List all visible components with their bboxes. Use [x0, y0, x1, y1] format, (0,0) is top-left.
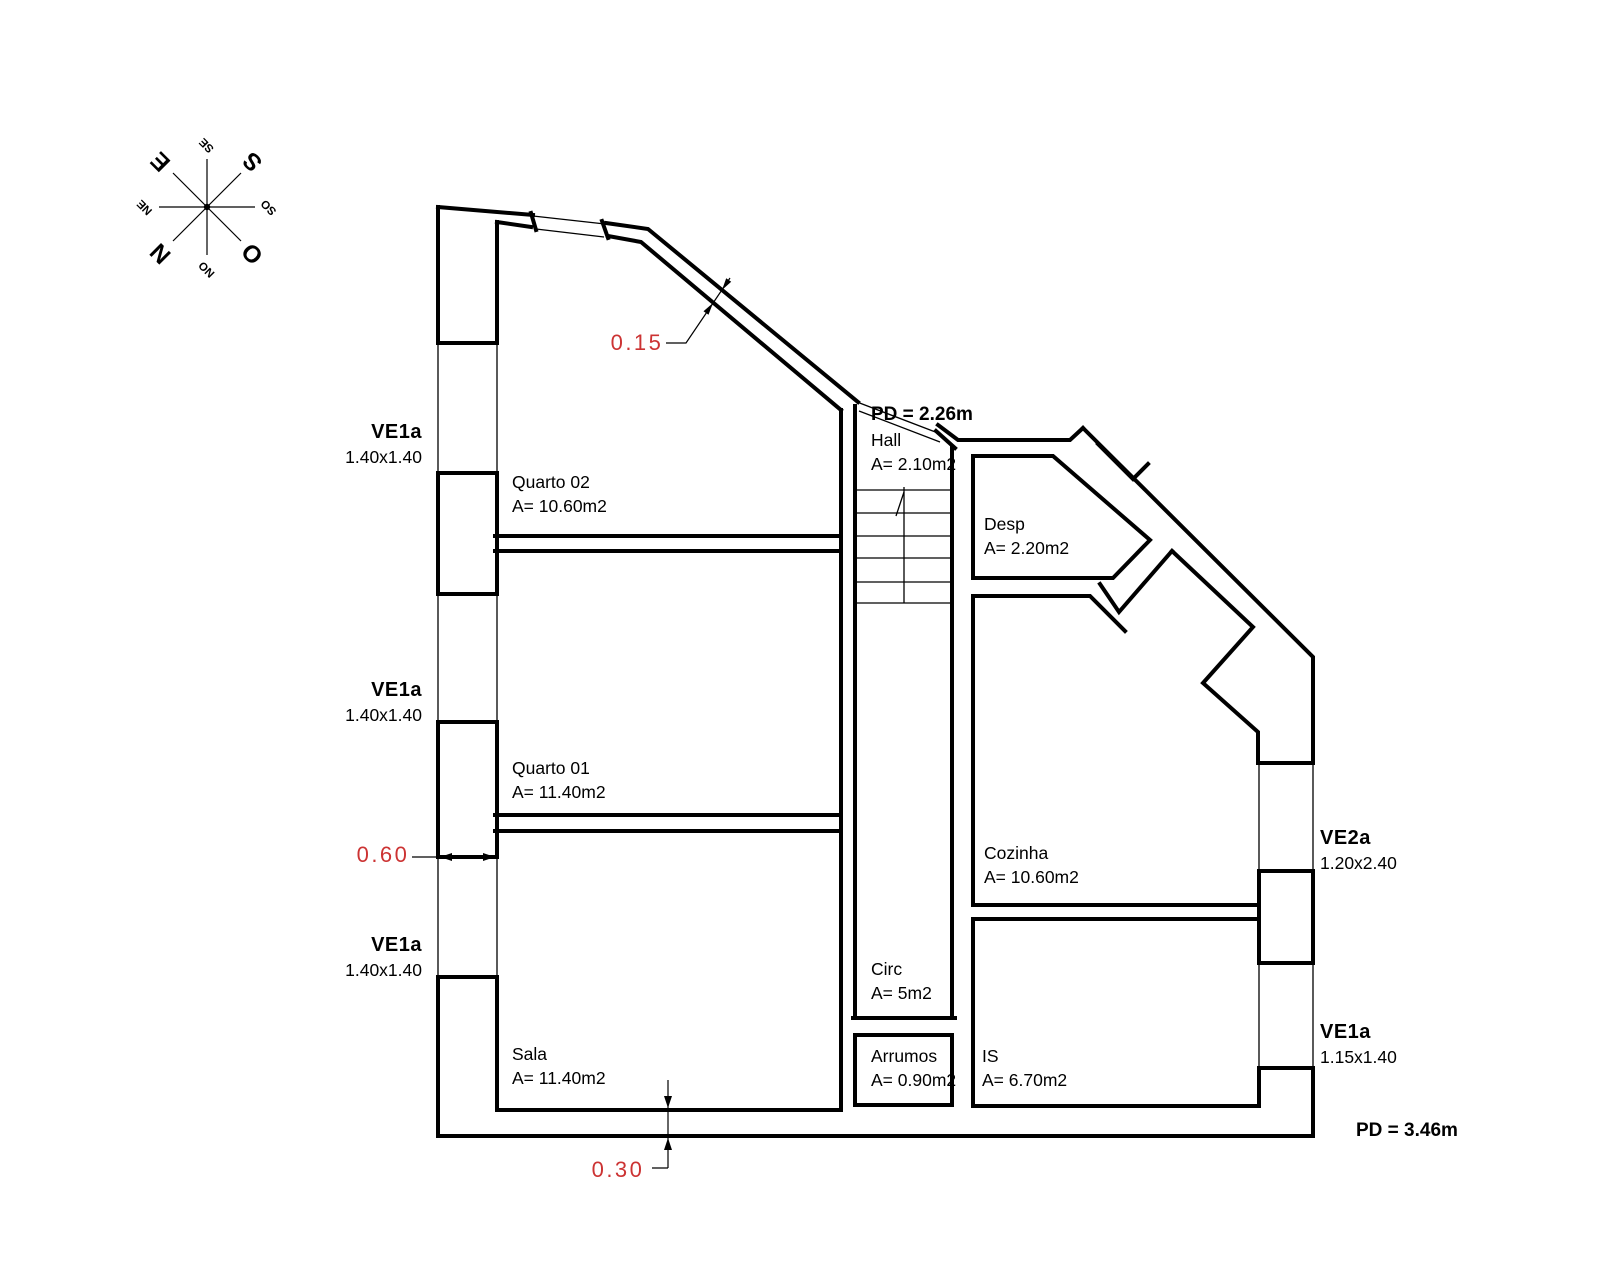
window-tag-ve1a-2: VE1a1.40x1.40 — [345, 933, 422, 982]
window-tag-ve2a-3: VE2a1.20x2.40 — [1320, 826, 1397, 875]
window-code: VE1a — [345, 678, 422, 703]
room-label-arrumos: ArrumosA= 0.90m2 — [871, 1044, 956, 1092]
window-size: 1.40x1.40 — [345, 958, 422, 982]
room-name: Hall — [871, 428, 956, 452]
window-tag-ve1a-1: VE1a1.40x1.40 — [345, 678, 422, 727]
ceiling-height-note-1: PD = 3.46m — [1356, 1120, 1458, 1142]
room-area: A= 2.10m2 — [871, 452, 956, 476]
window-code: VE1a — [345, 420, 422, 445]
window-code: VE2a — [1320, 826, 1397, 851]
dimension-text-0-30: 0.30 — [592, 1157, 645, 1183]
room-name: IS — [982, 1044, 1067, 1068]
floor-plan-linework — [0, 0, 1600, 1280]
room-name: Quarto 02 — [512, 470, 607, 494]
room-label-hall: HallA= 2.10m2 — [871, 428, 956, 476]
window-ve2a-right — [1259, 763, 1313, 871]
window-ve1a-right — [1259, 963, 1313, 1068]
windows-and-stairs-thin — [438, 216, 1313, 1068]
room-name: Cozinha — [984, 841, 1079, 865]
dimension-text-0-60: 0.60 — [357, 842, 410, 868]
window-code: VE1a — [345, 933, 422, 958]
room-label-desp: DespA= 2.20m2 — [984, 512, 1069, 560]
room-label-circ: CircA= 5m2 — [871, 957, 932, 1005]
room-label-is: ISA= 6.70m2 — [982, 1044, 1067, 1092]
window-ve1a-left-1 — [438, 343, 497, 473]
dim-0-30-leader — [652, 1080, 668, 1168]
room-label-quarto-01: Quarto 01A= 11.40m2 — [512, 756, 606, 804]
window-size: 1.20x2.40 — [1320, 851, 1397, 875]
room-area: A= 6.70m2 — [982, 1068, 1067, 1092]
room-name: Arrumos — [871, 1044, 956, 1068]
window-tag-ve1a-0: VE1a1.40x1.40 — [345, 420, 422, 469]
window-ve1a-left-3 — [438, 857, 497, 977]
window-size: 1.40x1.40 — [345, 445, 422, 469]
ceiling-height-note-0: PD = 2.26m — [871, 404, 973, 426]
room-area: A= 5m2 — [871, 981, 932, 1005]
room-area: A= 2.20m2 — [984, 536, 1069, 560]
room-area: A= 10.60m2 — [984, 865, 1079, 889]
window-code: VE1a — [1320, 1020, 1397, 1045]
window-top — [533, 216, 605, 237]
room-label-sala: SalaA= 11.40m2 — [512, 1042, 606, 1090]
room-area: A= 10.60m2 — [512, 494, 607, 518]
room-area: A= 11.40m2 — [512, 780, 606, 804]
window-size: 1.40x1.40 — [345, 703, 422, 727]
room-label-cozinha: CozinhaA= 10.60m2 — [984, 841, 1079, 889]
compass-rose — [159, 159, 255, 255]
room-label-quarto-02: Quarto 02A= 10.60m2 — [512, 470, 607, 518]
room-name: Circ — [871, 957, 932, 981]
room-name: Desp — [984, 512, 1069, 536]
window-size: 1.15x1.40 — [1320, 1045, 1397, 1069]
window-tag-ve1a-4: VE1a1.15x1.40 — [1320, 1020, 1397, 1069]
dimension-text-0-15: 0.15 — [611, 330, 664, 356]
room-name: Quarto 01 — [512, 756, 606, 780]
floor-plan-canvas: Quarto 02A= 10.60m2Quarto 01A= 11.40m2Sa… — [0, 0, 1600, 1280]
room-area: A= 0.90m2 — [871, 1068, 956, 1092]
room-area: A= 11.40m2 — [512, 1066, 606, 1090]
dimension-arrows — [440, 278, 731, 1150]
window-ve1a-left-2 — [438, 594, 497, 722]
room-name: Sala — [512, 1042, 606, 1066]
compass-center-dot — [204, 204, 210, 210]
